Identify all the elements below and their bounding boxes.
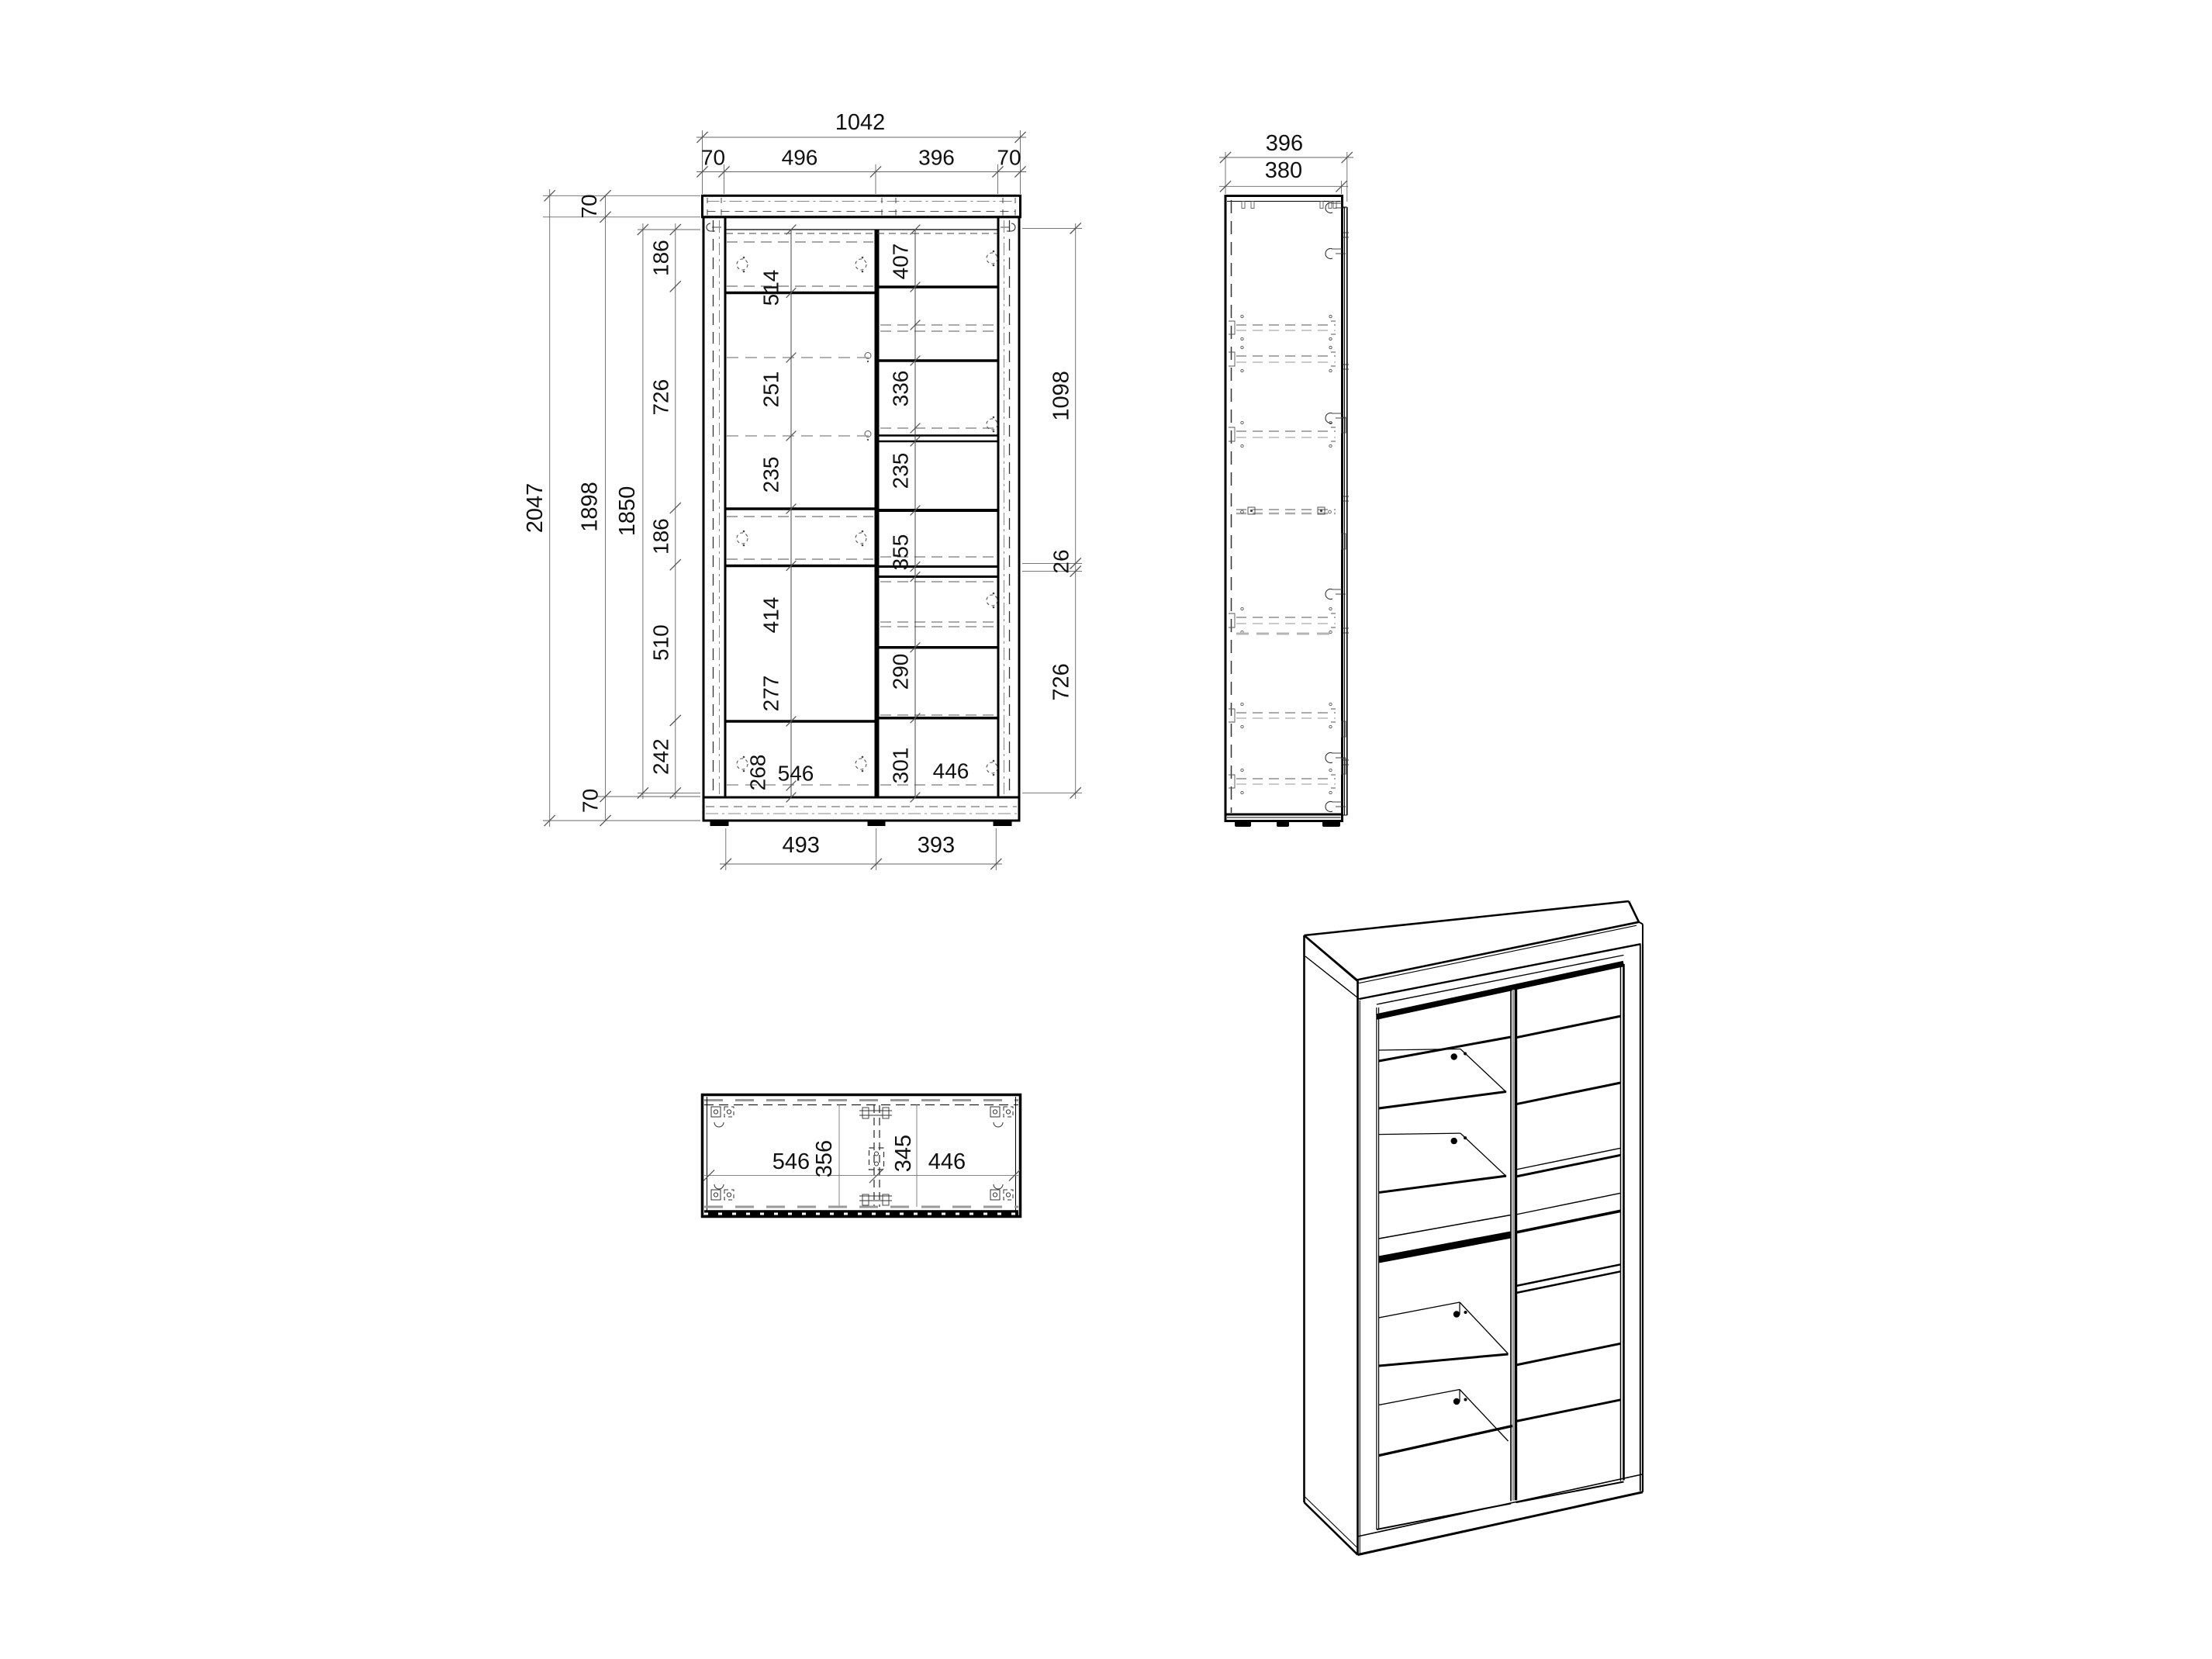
svg-text:493: 493: [783, 833, 820, 858]
svg-text:1042: 1042: [835, 110, 886, 135]
svg-text:70: 70: [577, 194, 601, 218]
svg-text:70: 70: [997, 146, 1021, 170]
svg-text:726: 726: [1049, 663, 1074, 700]
svg-text:235: 235: [889, 453, 913, 489]
svg-text:355: 355: [889, 534, 913, 571]
svg-text:242: 242: [649, 738, 673, 775]
svg-text:407: 407: [889, 244, 913, 280]
svg-text:70: 70: [701, 146, 725, 170]
svg-text:290: 290: [889, 654, 913, 690]
svg-text:446: 446: [928, 1149, 966, 1174]
svg-text:446: 446: [933, 759, 969, 783]
svg-text:396: 396: [918, 146, 955, 170]
svg-text:277: 277: [759, 676, 783, 712]
svg-text:393: 393: [918, 833, 955, 858]
svg-text:1850: 1850: [615, 486, 640, 537]
svg-text:546: 546: [772, 1149, 810, 1174]
svg-text:301: 301: [889, 748, 913, 784]
svg-text:268: 268: [746, 755, 770, 791]
svg-text:380: 380: [1265, 158, 1302, 183]
svg-text:1098: 1098: [1049, 371, 1074, 421]
svg-text:396: 396: [1266, 131, 1303, 156]
svg-text:235: 235: [759, 457, 783, 493]
svg-text:496: 496: [782, 146, 818, 170]
svg-text:186: 186: [649, 518, 673, 555]
svg-text:186: 186: [649, 240, 673, 276]
svg-text:510: 510: [649, 624, 673, 661]
svg-text:70: 70: [579, 789, 603, 813]
svg-text:2047: 2047: [523, 483, 548, 534]
svg-text:726: 726: [649, 379, 673, 416]
svg-text:356: 356: [812, 1140, 837, 1177]
svg-text:514: 514: [759, 270, 783, 306]
svg-text:336: 336: [889, 371, 913, 407]
svg-text:546: 546: [778, 762, 814, 786]
svg-text:251: 251: [759, 372, 783, 408]
svg-text:1898: 1898: [578, 482, 603, 532]
svg-text:345: 345: [891, 1135, 916, 1172]
svg-text:26: 26: [1049, 549, 1073, 573]
svg-text:414: 414: [759, 597, 783, 634]
